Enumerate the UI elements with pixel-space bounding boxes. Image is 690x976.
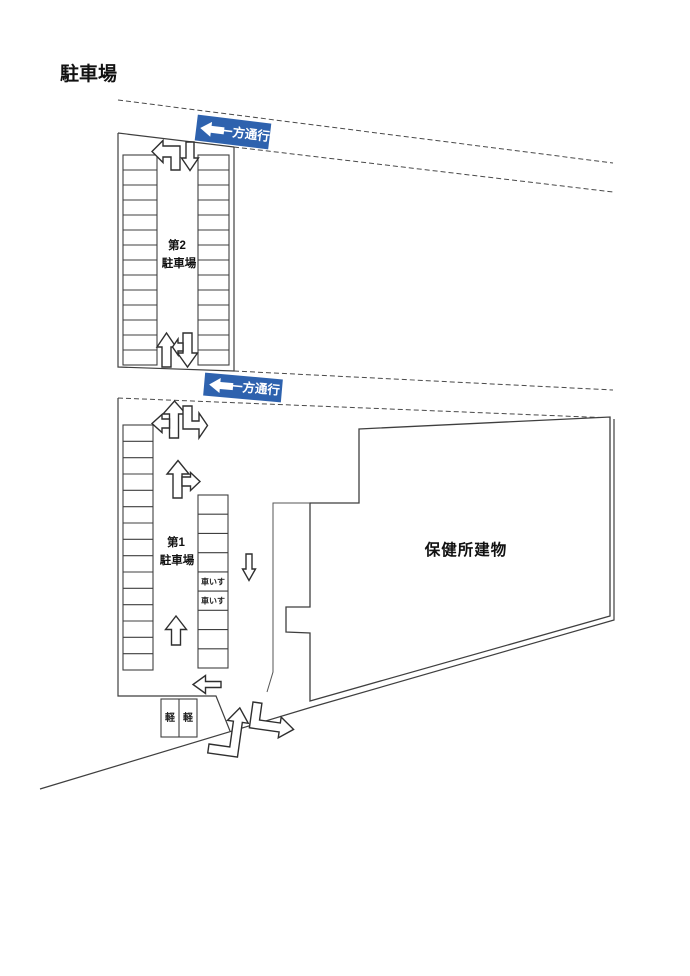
lot2-exit-left-turn-arrow-icon — [152, 141, 180, 171]
stall-column-outline — [123, 425, 153, 670]
kei-stall-box: 軽 軽 — [161, 699, 197, 737]
lot1-bottom-left-arrow-icon — [193, 676, 221, 694]
lot1-name-line2: 駐車場 — [160, 553, 195, 567]
lot2-name-line1: 第2 — [168, 238, 186, 252]
lot1-lower-up-arrow-icon — [166, 616, 187, 645]
exit-out-arrow-icon — [249, 702, 297, 740]
entrance-in-arrow-icon — [208, 704, 250, 758]
lot2-name-line2: 駐車場 — [162, 256, 197, 270]
lot2-right-stalls — [198, 155, 229, 365]
lot1-corridor-down-arrow-icon — [243, 554, 256, 581]
building-label: 保健所建物 — [424, 540, 508, 559]
wheelchair-stall-label: 車いす — [201, 596, 225, 606]
lot1-name-line1: 第1 — [167, 535, 185, 549]
parking-map-svg: 車いす車いす 軽 軽 一方通行 — [0, 0, 690, 976]
parking-map-page: 車いす車いす 軽 軽 一方通行 — [0, 0, 690, 976]
building-outline — [286, 417, 610, 701]
lot1-left-stalls — [123, 425, 153, 670]
lot1-top-right-turn-arrow-icon — [183, 406, 208, 438]
road-line-upper — [234, 147, 613, 192]
one-way-sign-middle: 一方通行 — [203, 373, 283, 403]
kei-stall-label: 軽 — [183, 711, 194, 724]
lot1-middle-stalls: 車いす車いす — [198, 495, 228, 668]
kei-stall-label: 軽 — [165, 711, 176, 724]
lot1-top-left-turn-head-icon — [152, 415, 170, 433]
road-line-middle — [234, 371, 613, 390]
lot1-mid-right-turn-head-icon — [182, 473, 200, 491]
lot2-entry-down-arrow-icon — [182, 142, 199, 171]
lot2-left-stalls — [123, 155, 157, 365]
page-title: 駐車場 — [60, 62, 117, 85]
walkway-line — [267, 503, 310, 692]
wheelchair-stall-label: 車いす — [201, 577, 225, 587]
lot2-bottom-up-arrow-icon — [157, 333, 176, 367]
